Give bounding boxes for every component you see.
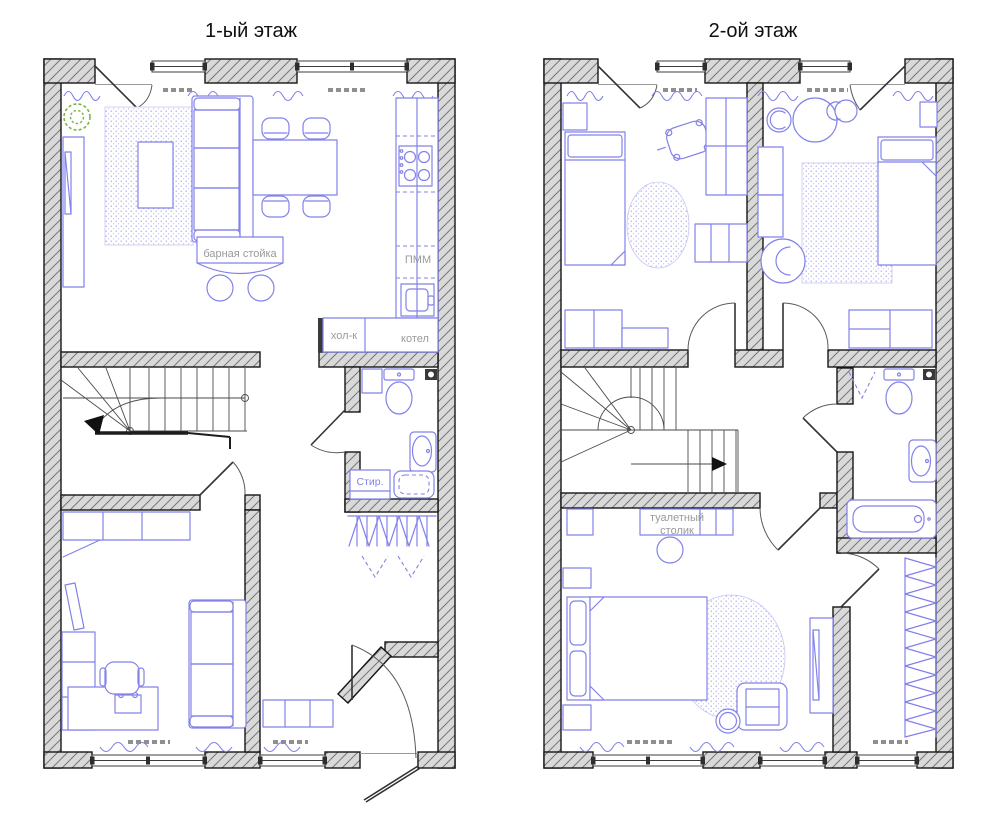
entry-door-top [95,66,152,108]
office-sofa [189,600,246,728]
bed [878,137,936,265]
master-bedroom-door [760,508,820,550]
tv-stand [810,618,833,713]
armchair [761,239,805,283]
stair-hall-door [200,462,245,495]
kitchen-counter [396,98,438,318]
window [758,755,827,766]
bedroom-2-door [783,303,828,350]
sofa [192,96,253,242]
sink [410,432,436,472]
window [90,755,207,766]
ironing-board [65,583,84,630]
closet-door [841,553,879,607]
window [855,755,919,766]
floorplan-canvas: 1-ый этаж [0,0,1000,827]
cabinet [849,310,932,348]
entry-door-bottom [364,766,420,802]
floorplan-drawing: 1-ый этаж [0,0,1000,827]
bedroom-2 [758,98,937,348]
dining-table [253,118,337,217]
desk-chair [653,119,712,166]
window [295,61,409,72]
label-dishwasher: ПММ [405,254,431,266]
wardrobe [565,310,668,348]
wardrobe [63,512,190,557]
sink [909,440,936,482]
label-fridge: хол-к [331,330,357,342]
bathroom-door [311,410,345,453]
dresser [758,147,783,237]
exhaust-fan [425,369,437,380]
label-washer: Стир. [356,476,383,488]
cabinet [695,224,747,262]
double-bed [567,597,707,700]
exhaust-fan [923,369,935,380]
master-bedroom [563,509,833,733]
balcony-door-left [598,66,657,108]
walk-in-closet [905,558,936,737]
desk-chair [100,662,144,694]
window [655,61,707,72]
coffee-table [138,142,173,208]
bar-counter [197,237,283,301]
floor-2-title: 2-ой этаж [709,20,798,42]
toilet [884,369,914,414]
bathtub [847,500,936,538]
side-table [716,709,740,733]
window [591,755,705,766]
chair [767,108,791,132]
label-bar-counter: барная стойка [203,248,277,260]
window [258,755,327,766]
window [798,61,852,72]
bedroom-1 [563,98,747,348]
dryer [394,471,434,498]
pouf [737,683,787,730]
bathroom-2-fixtures [847,369,936,538]
label-dressing-table-2: столик [660,525,694,537]
label-dressing-table-1: туалетный [650,512,704,524]
plant [64,104,90,130]
toilet [384,369,414,414]
floor-2-stairs [560,368,738,492]
bed [565,132,625,265]
label-boiler: котел [401,333,429,345]
floor-1-plan: 1-ый этаж [44,20,455,802]
window [150,61,207,72]
hallway-bench [263,700,333,727]
floor-1-title: 1-ый этаж [205,20,298,42]
bathroom-2-door [803,404,837,452]
tv-cabinet [63,137,84,287]
floor-1-stairs [61,368,249,449]
bedroom-1-door [688,303,735,350]
shelf-unit [706,98,747,195]
floor-2-plan: 2-ой этаж [544,20,953,768]
balcony-door-right [850,66,905,110]
drying-rack [348,516,436,577]
